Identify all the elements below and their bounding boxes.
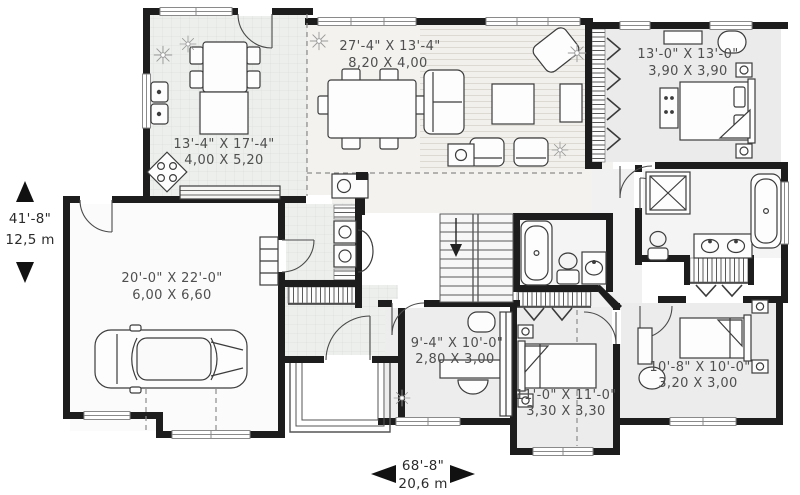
nightstand-icon: [752, 360, 768, 373]
double-sink-icon: [694, 234, 752, 258]
armchair-icon: [514, 138, 548, 166]
kitchen-counter: [180, 186, 280, 199]
armchair-icon: [470, 138, 504, 166]
bed-icon: [680, 79, 755, 143]
porch-steps: [290, 363, 390, 432]
window: [670, 418, 736, 426]
sofa-icon: [424, 70, 464, 134]
dining-table-icon: [318, 69, 426, 149]
plant-icon: [180, 36, 197, 53]
height-metric: 12,5 m: [5, 232, 54, 248]
master-closet-hatch: [592, 29, 605, 162]
bed-icon: [518, 341, 596, 391]
dresser-icon: [638, 328, 652, 364]
stairs-icon: [440, 214, 513, 302]
bed-icon: [680, 315, 751, 361]
floor-plan: 27'-4" X 13'-4" 8,20 X 4,00 13'-4" X 17'…: [0, 0, 800, 495]
width-dimension: 68'-8" 20,6 m: [371, 458, 475, 492]
chest-of-drawers-icon: [660, 88, 678, 128]
kitchen-dimensions-imperial: 13'-4" X 17'-4": [173, 137, 274, 152]
window: [160, 8, 232, 16]
nightstand-icon: [736, 144, 752, 158]
walkin-closet-hatch: [690, 258, 748, 282]
height-imperial: 41'-8": [9, 211, 51, 227]
garage-steps-icon: [260, 237, 278, 285]
car-icon: [95, 325, 247, 393]
dresser-icon: [664, 31, 702, 44]
garage-dimensions-imperial: 20'-0" X 22'-0": [121, 271, 222, 286]
nightstand-icon: [752, 300, 768, 313]
bedroom-2-dimensions-metric: 3,30 X 3,30: [526, 404, 605, 419]
window: [396, 418, 460, 426]
great-room-dimensions-metric: 8,20 X 4,00: [348, 56, 427, 71]
width-metric: 20,6 m: [398, 476, 447, 492]
window: [533, 448, 593, 456]
nightstand-icon: [736, 63, 752, 77]
bifold-door-icon: [696, 285, 716, 296]
arrow-right-icon: [450, 465, 475, 483]
side-table-icon: [560, 84, 582, 122]
window: [143, 74, 151, 128]
floor-plan-drawing: 27'-4" X 13'-4" 8,20 X 4,00 13'-4" X 17'…: [0, 0, 800, 495]
chair-icon: [468, 312, 495, 332]
window: [781, 182, 789, 244]
end-table-icon: [448, 144, 474, 166]
bathtub-icon: [521, 221, 552, 285]
garage-dimensions-metric: 6,00 X 6,60: [132, 288, 211, 303]
window: [486, 18, 580, 26]
nightstand-icon: [518, 325, 533, 338]
den-dimensions-imperial: 9'-4" X 10'-0": [411, 336, 504, 351]
window: [620, 22, 650, 30]
plant-icon: [552, 142, 569, 159]
shower-icon: [646, 172, 690, 214]
great-room-dimensions-imperial: 27'-4" X 13'-4": [339, 39, 440, 54]
plant-icon: [310, 32, 328, 50]
coffee-table-icon: [492, 84, 534, 124]
width-imperial: 68'-8": [402, 458, 444, 474]
hall-closet-hatch: [517, 292, 591, 306]
kitchen-island-icon: [200, 92, 248, 134]
master-bedroom-dimensions-metric: 3,90 X 3,90: [648, 64, 727, 79]
laundry-shelf-hatch: [334, 205, 358, 219]
bedroom-2-dimensions-imperial: 11'-0" X 11'-0": [515, 388, 616, 403]
wardrobe-icon: [500, 312, 512, 416]
arrow-down-icon: [16, 262, 34, 283]
foyer-closet-hatch: [288, 287, 356, 303]
bedroom-3-dimensions-metric: 3,20 X 3,00: [658, 376, 737, 391]
window: [172, 431, 250, 439]
den-dimensions-metric: 2,80 X 3,00: [415, 352, 494, 367]
bathtub-icon: [751, 174, 781, 248]
height-dimension: 41'-8" 12,5 m: [5, 181, 54, 283]
sink-icon: [582, 252, 606, 284]
bedroom-3-dimensions-imperial: 10'-8" X 10'-0": [649, 360, 750, 375]
bifold-door-icon: [722, 285, 742, 296]
bar-counter-icon: [332, 172, 368, 198]
master-bedroom-dimensions-imperial: 13'-0" X 13'-0": [637, 47, 738, 62]
arrow-up-icon: [16, 181, 34, 202]
window: [710, 22, 752, 30]
washer-dryer-icon: [334, 221, 373, 272]
arrow-left-icon: [371, 465, 396, 483]
window: [84, 412, 130, 420]
window: [318, 18, 416, 26]
kitchen-dimensions-metric: 4,00 X 5,20: [184, 153, 263, 168]
